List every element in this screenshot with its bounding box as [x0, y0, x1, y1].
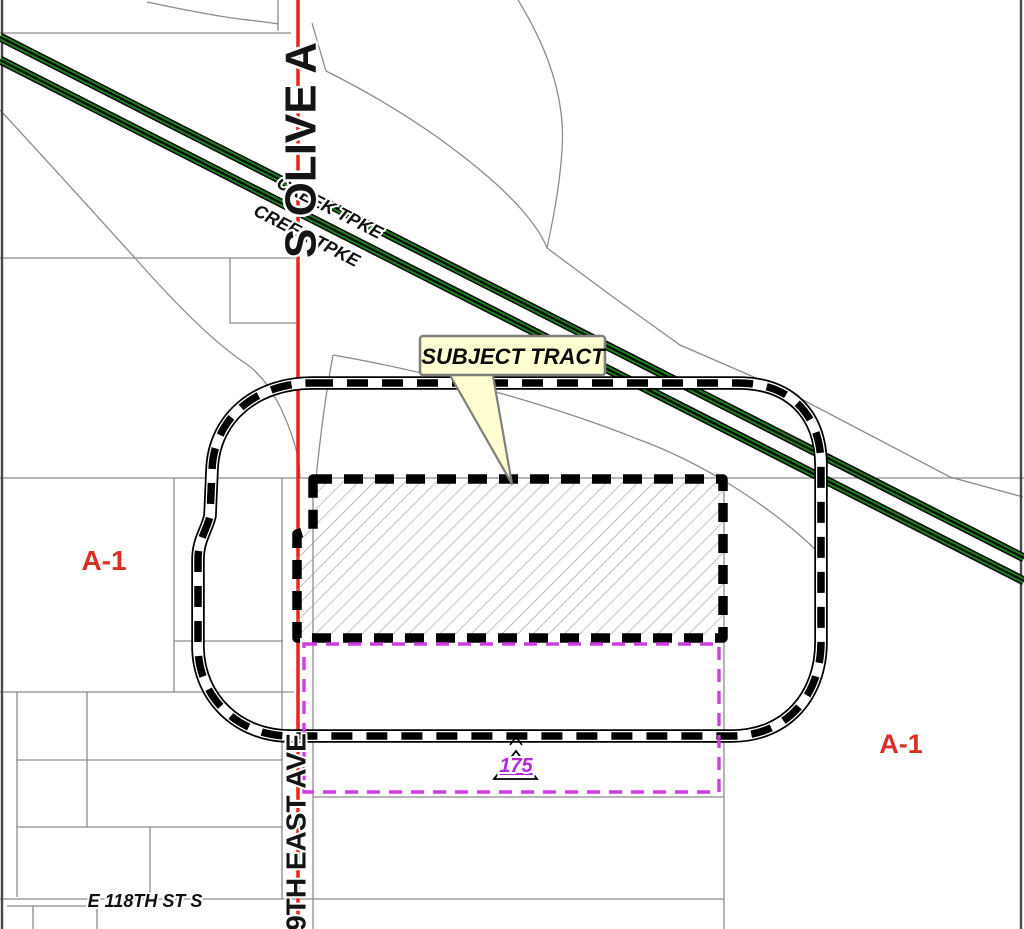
- street-label-e-118th: E 118TH ST S: [88, 891, 203, 911]
- zoning-label-left: A-1: [81, 545, 126, 576]
- zoning-map: CREEK TPKE CREEK TPKE 175 SUBJECT TRACT …: [0, 0, 1024, 929]
- callout-label: SUBJECT TRACT: [421, 344, 606, 369]
- subject-tract: [297, 479, 723, 638]
- case-number-label: 175: [499, 755, 533, 777]
- street-label-east-ave: 9TH EAST AVE: [281, 733, 312, 929]
- street-label-olive-ave: S OLIVE A: [277, 42, 326, 258]
- subject-tract-area: [297, 479, 723, 638]
- map-svg: CREEK TPKE CREEK TPKE 175 SUBJECT TRACT …: [0, 0, 1024, 929]
- zoning-label-right: A-1: [879, 729, 923, 759]
